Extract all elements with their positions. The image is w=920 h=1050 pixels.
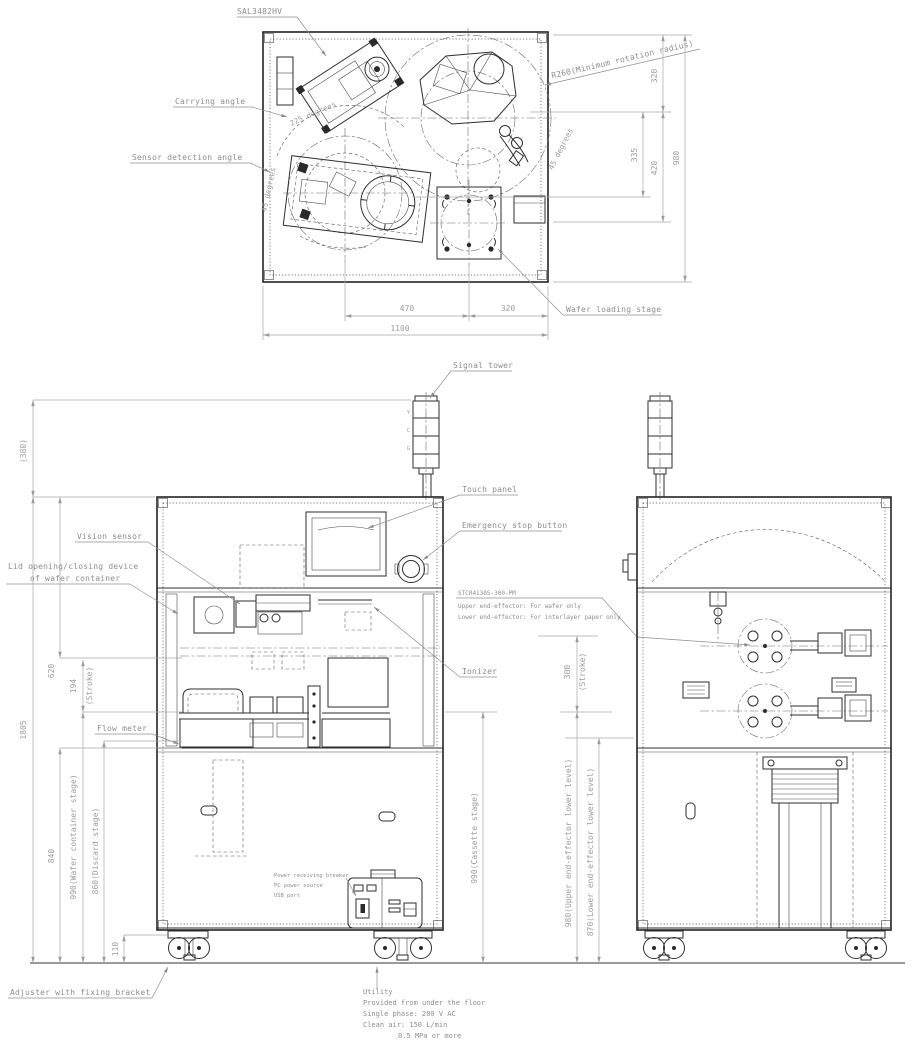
- lid-device-label-line1: Lid opening/closing device: [8, 562, 138, 571]
- top-view-inner-seal: [270, 39, 541, 275]
- dim-194: 194: [69, 679, 78, 694]
- control-box-top: [514, 196, 545, 223]
- ionizer-label: Ionizer: [462, 667, 497, 676]
- utility-line4: 0.5 MPa or more: [398, 1032, 461, 1040]
- aligner-assembly-top: [283, 156, 430, 243]
- dim-335: 335: [630, 148, 639, 163]
- signal-tower-front: Y C G: [407, 392, 439, 500]
- lid-device-label-line2: of wafer container: [30, 574, 120, 583]
- touch-panel-label: Touch panel: [462, 485, 517, 494]
- dim-1805: 1805: [19, 720, 28, 739]
- emergency-stop-label: Emergency stop button: [462, 521, 567, 530]
- casters-front: [168, 931, 432, 960]
- utility-title: Utility: [363, 988, 393, 996]
- stcr-model: STCR4130S-300-PM: [458, 590, 516, 597]
- sensor-angle-label: Sensor detection angle: [132, 153, 242, 162]
- dim-620: 620: [47, 664, 56, 679]
- vision-sensor-label: Vision sensor: [77, 532, 142, 541]
- machine-frame-side: [637, 497, 891, 930]
- dim-320-right: 320: [650, 69, 659, 84]
- flow-meter-panel: [328, 658, 388, 707]
- flow-meter-label: Flow meter: [97, 724, 147, 733]
- utility-line3: Clean air: 150 L/min: [363, 1021, 447, 1029]
- dim-300: 300: [563, 665, 572, 680]
- door-handle-right[interactable]: [379, 812, 395, 821]
- top-view: SAL3482HV R260(Minimum rotation radius) …: [130, 7, 700, 340]
- signal-tower-label: Signal tower: [453, 361, 513, 370]
- lower-cabinet-side: [686, 752, 853, 928]
- usb-port-slot[interactable]: [389, 900, 400, 904]
- carrying-angle-value: 225 degrees: [288, 100, 337, 128]
- door-handle-side[interactable]: [686, 803, 695, 819]
- dim-470: 470: [400, 304, 415, 313]
- dim-stroke-side: (Stroke): [578, 653, 587, 692]
- power-breaker-note-1: Power receiving breaker: [274, 873, 349, 879]
- adjuster-label: Adjuster with fixing bracket: [10, 988, 150, 997]
- robot-model-label: SAL3482HV: [237, 7, 282, 16]
- dim-980-upper-effector: 980(Upper end-effector lower level): [564, 759, 573, 928]
- touch-panel[interactable]: [306, 512, 386, 576]
- wafer-container: [183, 689, 243, 713]
- stcr-upper-note: Upper end-effector: For wafer only: [458, 603, 581, 610]
- bottom-notes: Adjuster with fixing bracket Utility Pro…: [8, 967, 485, 1040]
- robot-pedestal: [757, 752, 853, 928]
- casters-side: [644, 931, 887, 960]
- dim-320-bottom: 320: [501, 304, 516, 313]
- transfer-robot-side: [683, 592, 888, 738]
- dim-980: 980: [672, 151, 681, 166]
- door-handle-left[interactable]: [201, 806, 217, 815]
- swing-angle-value: 45 degrees: [547, 127, 576, 171]
- dim-1100: 1100: [390, 324, 409, 333]
- adjuster-foot: [397, 955, 408, 960]
- dim-990-cassette: 990(Cassette stage): [470, 792, 479, 884]
- dim-110: 110: [111, 942, 120, 957]
- side-view: [623, 392, 891, 960]
- upper-end-effector: [818, 633, 842, 653]
- tower-letter-g: G: [407, 446, 410, 452]
- wafer-loading-stage-label: Wafer loading stage: [566, 305, 661, 314]
- tower-letter-y: Y: [407, 410, 411, 416]
- dim-870-lower-effector: 870(Lower end-effector lower level): [586, 768, 595, 937]
- signal-tower-side: [648, 392, 672, 500]
- front-view: Y C G Signal tower Touch panel: [6, 361, 750, 960]
- robot-arm-assembly-top: [420, 52, 528, 166]
- machine-outline-drawing: SAL3482HV R260(Minimum rotation radius) …: [0, 0, 920, 1050]
- wafer-transfer-robot-top: [295, 37, 403, 133]
- power-breaker-note-2: PC power source: [274, 883, 323, 889]
- drawing-canvas: SAL3482HV R260(Minimum rotation radius) …: [0, 0, 920, 1050]
- panel-swing-arc: [652, 530, 886, 583]
- side-unit: [277, 57, 293, 105]
- dim-840: 840: [47, 849, 56, 864]
- power-receiving-box: [348, 870, 422, 928]
- dim-860-discard: 860(Discard stage): [91, 808, 100, 895]
- carrying-angle-label: Carrying angle: [175, 97, 245, 106]
- stcr-lower-note: Lower end-effector: For interlayer paper…: [458, 614, 621, 621]
- dim-stroke-front: (Stroke): [85, 667, 94, 706]
- utility-line2: Single phase: 200 V AC: [363, 1010, 456, 1018]
- sensor-angle-value: 45 degrees: [259, 166, 277, 212]
- interior-equipment-front: [166, 594, 440, 747]
- utility-line1: Provided from under the floor: [363, 999, 485, 1007]
- wafer-loading-stage: [430, 180, 508, 266]
- min-rotation-radius-label: R260(Minimum rotation radius): [551, 39, 695, 80]
- dim-420: 420: [650, 161, 659, 176]
- dim-990-wafer-container: 990(Wafer container stage): [69, 774, 78, 899]
- lower-cabinet-front: [195, 760, 422, 928]
- estop-side-profile: [628, 554, 637, 580]
- pc-power-outlet[interactable]: [404, 903, 416, 916]
- dim-380-tower: (380): [19, 439, 28, 463]
- tower-letter-c: C: [407, 428, 410, 434]
- lower-end-effector: [818, 698, 842, 718]
- power-breaker-note-3: USB port: [274, 893, 300, 899]
- vision-sensor-unit: [194, 597, 234, 633]
